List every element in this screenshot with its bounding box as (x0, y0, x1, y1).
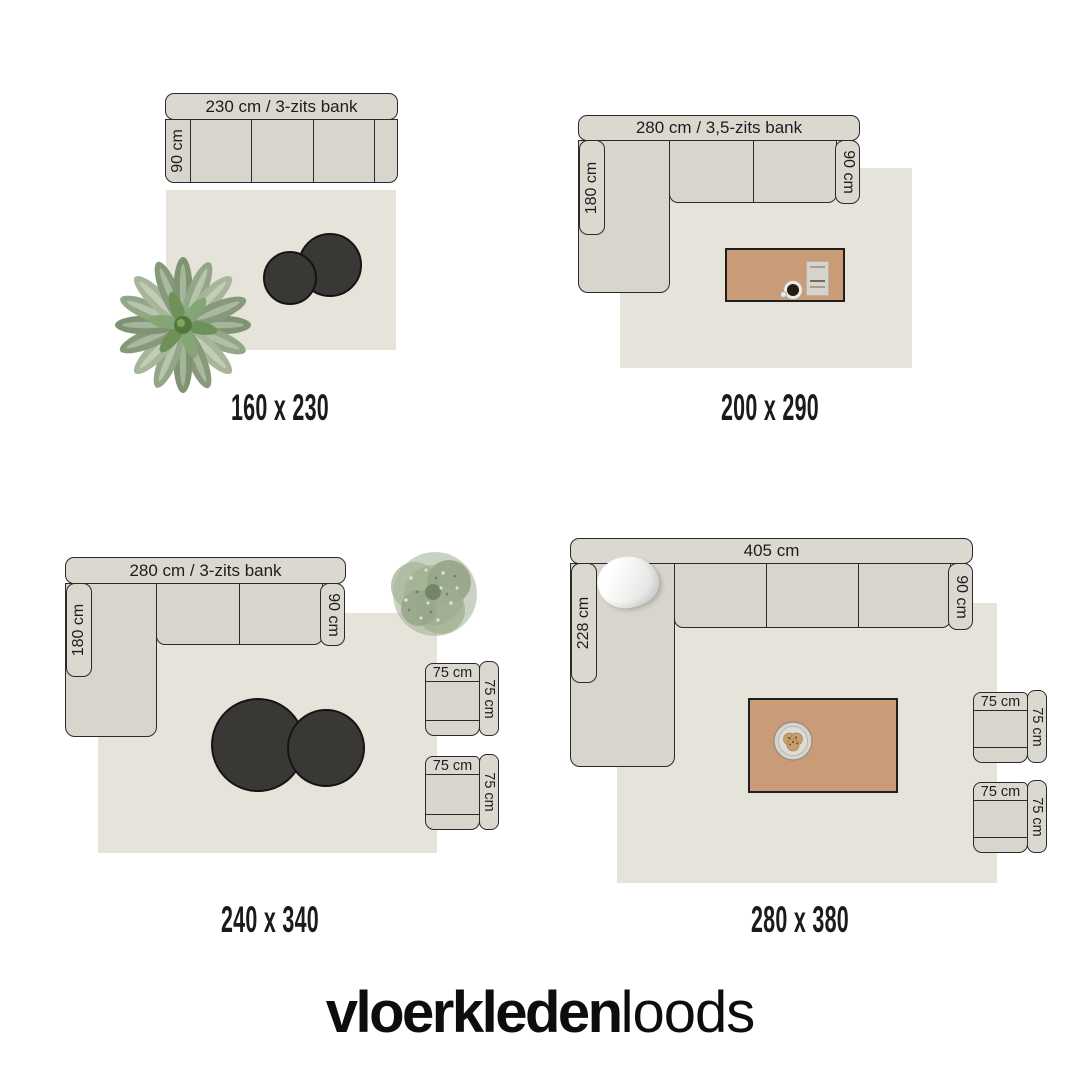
sofa-backrest: 230 cm / 3-zits bank (165, 93, 398, 120)
armchair-depth-label: 75 cm (1029, 707, 1045, 747)
armchair: 75 cm 75 cm (425, 754, 499, 830)
rug-size-label: 200 x 290 (706, 387, 834, 429)
armchair: 75 cm 75 cm (973, 690, 1047, 763)
seat-cushion (314, 120, 375, 182)
sofa-armrest-right: 90 cm (948, 563, 973, 630)
sofa-seats (669, 140, 837, 203)
chaise-armrest: 180 cm (66, 583, 92, 677)
seat-cushion (675, 564, 767, 627)
sofa-width-label: 405 cm (744, 541, 800, 561)
coffee-cup-icon (783, 280, 803, 300)
coffee-table (725, 248, 845, 302)
armchair-depth-label: 75 cm (481, 772, 497, 812)
chaise-armrest: 180 cm (579, 140, 605, 235)
seat-cushion (191, 120, 252, 182)
sofa-seats (674, 563, 951, 628)
magazine-icon (806, 261, 829, 296)
sofa-depth-label: 90 cm (169, 129, 187, 173)
chaise-length-label: 180 cm (70, 604, 88, 656)
sofa-armrest-right: 90 cm (320, 583, 345, 646)
brand-logo-light: loods (621, 980, 755, 1045)
sofa-depth-label: 90 cm (324, 593, 342, 637)
seat-cushion (859, 564, 950, 627)
armchair-backrest: 75 cm (1027, 780, 1047, 853)
sofa-depth-label: 90 cm (839, 150, 857, 194)
chaise-length-label: 180 cm (583, 161, 601, 213)
sofa-armrest-right: 90 cm (835, 140, 860, 204)
armchair-seat-line (426, 814, 479, 815)
armchair-width-label: 75 cm (973, 782, 1028, 801)
armchair-backrest: 75 cm (479, 754, 499, 830)
armchair-backrest: 75 cm (479, 661, 499, 736)
tree-icon (381, 548, 487, 648)
sofa-seats: 90 cm (165, 119, 398, 183)
rug-size-label: 160 x 230 (216, 387, 344, 429)
brand-logo: vloerkledenloods (0, 979, 1080, 1046)
armchair-backrest: 75 cm (1027, 690, 1047, 763)
seat-cushion (252, 120, 313, 182)
round-side-table-small (287, 709, 365, 787)
rug-size-label: 240 x 340 (206, 899, 334, 941)
armchair: 75 cm 75 cm (973, 780, 1047, 853)
serving-tray-icon (773, 721, 813, 761)
plant-icon (105, 243, 261, 403)
armchair-depth-label: 75 cm (481, 679, 497, 719)
armchair: 75 cm 75 cm (425, 661, 499, 736)
sofa-depth-label: 90 cm (952, 575, 970, 619)
sofa-armrest-right (375, 120, 397, 182)
armchair-depth-label: 75 cm (1029, 797, 1045, 837)
brand-logo-bold: vloerkleden (326, 980, 621, 1045)
chaise-armrest: 228 cm (571, 563, 597, 683)
seat-cushion (670, 141, 754, 202)
sofa-seats (156, 583, 323, 645)
armchair-seat-line (974, 747, 1027, 748)
armchair-seat-line (974, 837, 1027, 838)
sofa-width-label: 280 cm / 3-zits bank (129, 561, 281, 581)
seat-cushion (754, 141, 837, 202)
armchair-width-label: 75 cm (425, 756, 480, 775)
sofa-backrest: 280 cm / 3,5-zits bank (578, 115, 860, 141)
rug-size-infographic: 230 cm / 3-zits bank 90 cm (0, 0, 1080, 1080)
chaise-length-label: 228 cm (575, 597, 593, 649)
armchair-width-label: 75 cm (425, 663, 480, 682)
sofa-backrest: 280 cm / 3-zits bank (65, 557, 346, 584)
sofa-armrest-left: 90 cm (166, 120, 191, 182)
rug-size-label: 280 x 380 (736, 899, 864, 941)
coffee-table (748, 698, 898, 793)
seat-cushion (157, 584, 240, 644)
armchair-width-label: 75 cm (973, 692, 1028, 711)
seat-cushion (240, 584, 322, 644)
round-side-table-small (263, 251, 317, 305)
sofa-width-label: 230 cm / 3-zits bank (205, 97, 357, 117)
seat-cushion (767, 564, 859, 627)
sofa-width-label: 280 cm / 3,5-zits bank (636, 118, 802, 138)
armchair-seat-line (426, 720, 479, 721)
